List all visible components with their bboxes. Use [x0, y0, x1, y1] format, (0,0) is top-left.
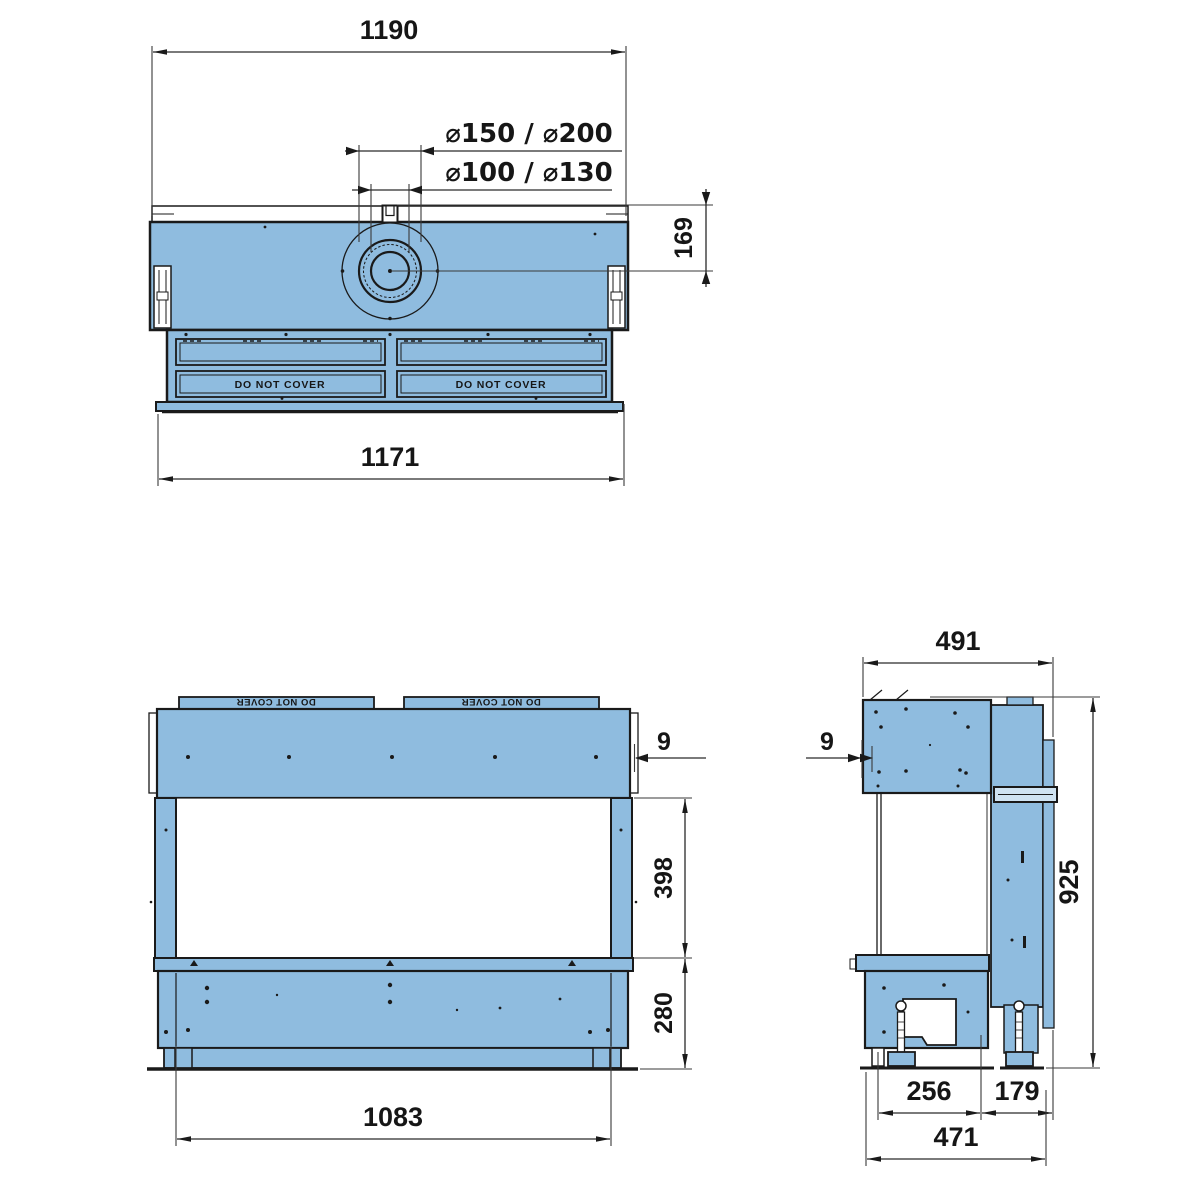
dim-front-frame-thickness: 9 — [635, 728, 707, 772]
side-top-box — [863, 700, 991, 793]
dim-front-base-height: 280 — [640, 959, 692, 1069]
front-left-column — [155, 798, 176, 958]
side-bottom-flange — [856, 955, 989, 971]
drawing-canvas: DO NOT COVER DO NOT COVER — [0, 0, 1200, 1200]
front-base-strip — [164, 1048, 621, 1068]
top-view-bottom-strip — [156, 402, 623, 411]
top-view-left-rail — [154, 266, 171, 328]
side-back-strip — [1043, 740, 1054, 1028]
side-view: 491 9 925 256 179 — [806, 626, 1100, 1166]
front-grille-right: DO NOT COVER — [404, 696, 599, 709]
front-grille-left: DO NOT COVER — [179, 696, 374, 709]
top-view-body — [150, 222, 628, 330]
front-right-column — [611, 798, 632, 958]
top-grille-left-label: DO NOT COVER — [235, 379, 326, 391]
dim-side-firebox-depth-label: 256 — [906, 1076, 951, 1106]
front-lower-panel — [158, 971, 628, 1048]
dim-front-glass-height: 398 — [634, 798, 692, 958]
flue-tab — [383, 206, 398, 223]
dim-flue-inner-label: ⌀100 / ⌀130 — [445, 158, 612, 188]
top-view-grille-zone — [167, 330, 612, 402]
front-grille-right-label: DO NOT COVER — [461, 696, 540, 707]
dim-top-body-width: 1171 — [158, 404, 624, 486]
front-top-panel — [157, 709, 630, 798]
dim-front-frame-thickness-label: 9 — [657, 728, 671, 756]
dim-front-glass-height-label: 398 — [650, 857, 678, 899]
dim-front-base-height-label: 280 — [650, 992, 678, 1034]
top-view: DO NOT COVER DO NOT COVER — [150, 15, 713, 486]
side-mounting-bracket — [994, 787, 1057, 802]
dim-flue-offset-label: 169 — [670, 217, 698, 259]
front-floor-flange — [154, 958, 633, 971]
dim-side-base-depth-label: 471 — [933, 1122, 978, 1152]
dim-front-glass-width-label: 1083 — [363, 1102, 423, 1132]
dim-side-frame-thickness-label: 9 — [820, 728, 834, 756]
dim-top-body-width-label: 1171 — [361, 442, 420, 472]
dim-side-back-depth-label: 179 — [994, 1076, 1039, 1106]
dim-side-top-depth-label: 491 — [935, 626, 980, 656]
top-view-right-rail — [608, 266, 625, 328]
dim-top-overall-width-label: 1190 — [360, 15, 419, 45]
front-grille-left-label: DO NOT COVER — [236, 696, 315, 707]
top-grille-right-label: DO NOT COVER — [456, 379, 547, 391]
front-glass-window — [176, 798, 611, 958]
front-view: DO NOT COVER DO NOT COVER — [147, 696, 706, 1146]
dim-flue-outer-label: ⌀150 / ⌀200 — [445, 119, 612, 149]
dim-side-overall-height-label: 925 — [1054, 859, 1084, 904]
side-back-column — [991, 705, 1043, 1007]
